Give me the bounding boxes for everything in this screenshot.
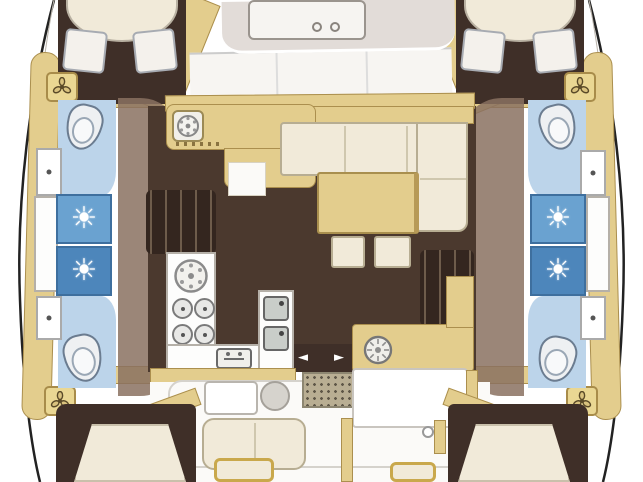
- winch-circle: [330, 22, 340, 32]
- stbd-fwd-shower: ☀: [530, 194, 586, 244]
- salon-stool: [331, 236, 365, 268]
- cockpit-module: [204, 381, 258, 415]
- deck-hatch: [46, 72, 78, 102]
- stove-4-burner: [170, 296, 214, 348]
- door-slide-arrow-right: ►: [334, 351, 344, 364]
- pillow: [532, 28, 578, 74]
- sink: [580, 296, 606, 340]
- pillow: [460, 28, 506, 74]
- cockpit-door-wall: ◄ ►: [294, 344, 356, 372]
- hatch-fan-icon: [570, 77, 590, 97]
- cockpit-seat: [390, 462, 436, 482]
- stbd-head-counter: [586, 196, 610, 292]
- counter-round-sink: [362, 334, 394, 366]
- sink: [36, 148, 62, 196]
- cockpit-seat: [214, 458, 274, 482]
- port-aft-berth: [74, 424, 186, 482]
- sofa-seam: [406, 126, 408, 174]
- shower-sun-icon: ☀: [71, 204, 98, 234]
- port-hull-stairs: [146, 190, 216, 254]
- burner: [194, 298, 215, 319]
- shower-sun-icon: ☀: [71, 256, 98, 286]
- counter-dotted-line: [176, 142, 222, 146]
- table-circle-detail: [422, 426, 434, 438]
- cockpit-post: [434, 420, 446, 454]
- stbd-aft-berth: [458, 424, 570, 482]
- pillow: [132, 28, 178, 74]
- burner: [172, 324, 193, 345]
- galley-counter-arm: [446, 276, 474, 328]
- salon-stool: [374, 236, 411, 268]
- oven-knob: [238, 352, 242, 356]
- sink: [580, 150, 606, 196]
- port-fwd-shower: ☀: [56, 194, 112, 244]
- shower-sun-icon: ☀: [545, 256, 572, 286]
- hatch-fan-icon: [52, 77, 72, 97]
- deck-hatch: [564, 72, 596, 102]
- burner: [194, 324, 215, 345]
- oven-knob: [226, 352, 230, 356]
- pillow: [62, 28, 108, 74]
- sink-basin-icon: [172, 257, 210, 295]
- galley-round-basin: [172, 257, 210, 295]
- shower-sun-icon: ☀: [545, 204, 572, 234]
- double-sink-basin: [263, 296, 289, 321]
- burner: [172, 298, 193, 319]
- salon-sofa-right: [416, 122, 468, 232]
- cockpit-post: [341, 418, 353, 482]
- catamaran-deck-plan: ☀ ☀ ☀ ☀: [0, 0, 643, 482]
- oven: [216, 348, 252, 369]
- galley-round-sink: [172, 110, 204, 142]
- sofa-seam: [420, 178, 466, 180]
- sink-basin-icon: [362, 334, 394, 366]
- port-head-counter: [34, 196, 58, 292]
- cockpit-round-fixture: [260, 381, 290, 411]
- oven-handle: [224, 358, 244, 360]
- winch-circle: [312, 22, 322, 32]
- foredeck-console: [248, 0, 366, 40]
- sofa-seam: [344, 126, 346, 174]
- stbd-aft-shower: ☀: [530, 246, 586, 296]
- sink-basin-icon: [174, 112, 202, 140]
- cockpit-entry-grate: [302, 372, 354, 408]
- port-aft-shower: ☀: [56, 246, 112, 296]
- door-slide-arrow-left: ◄: [298, 351, 308, 364]
- sink: [36, 296, 62, 340]
- galley-counter-notch: [228, 162, 266, 196]
- salon-table: [317, 172, 419, 234]
- double-sink-basin: [263, 326, 289, 351]
